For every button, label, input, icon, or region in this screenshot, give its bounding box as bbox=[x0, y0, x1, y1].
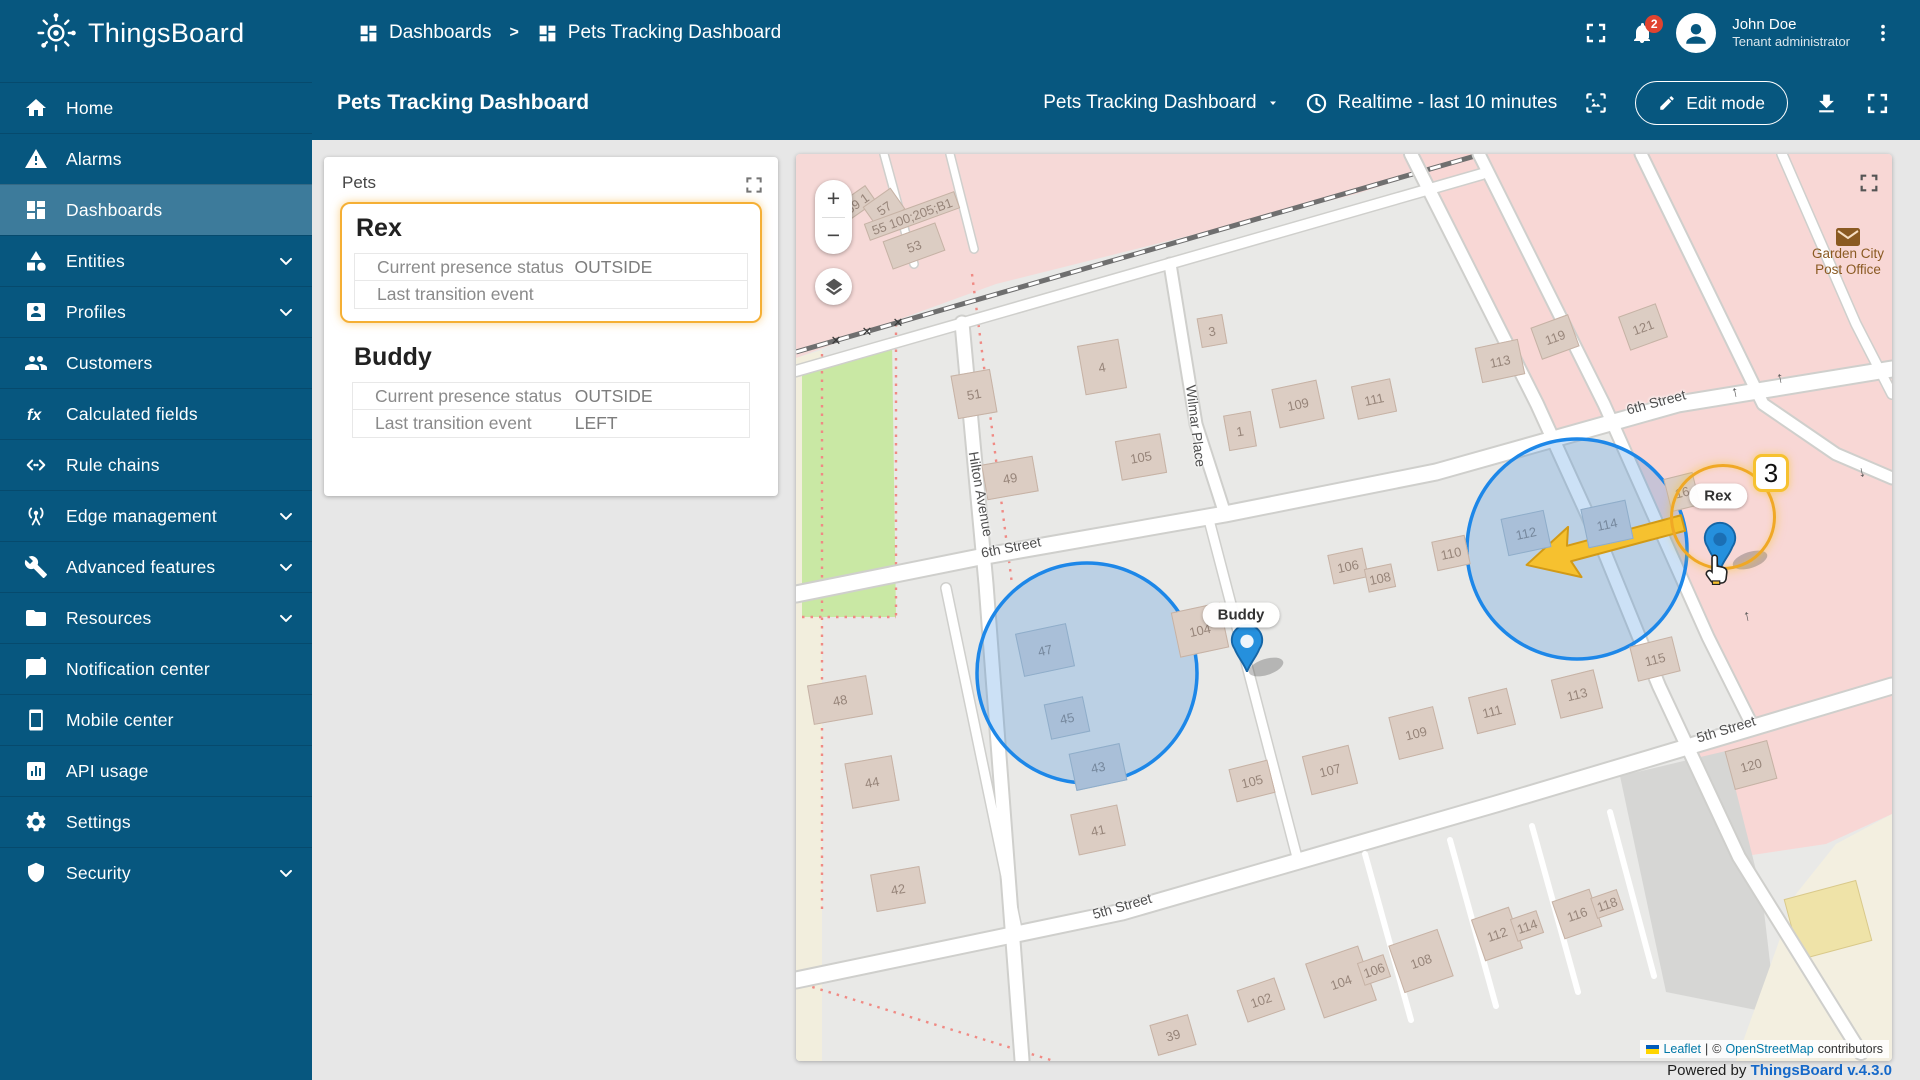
osm-link[interactable]: OpenStreetMap bbox=[1725, 1042, 1813, 1056]
ukraine-flag-icon bbox=[1646, 1045, 1659, 1054]
widget-title: Pets bbox=[342, 173, 376, 193]
rule-chains-icon bbox=[24, 453, 48, 477]
profiles-icon bbox=[24, 300, 48, 324]
widget-expand-icon[interactable] bbox=[744, 175, 764, 195]
dashboard-toolbar: Pets Tracking Dashboard Pets Tracking Da… bbox=[312, 66, 1920, 140]
timewindow-button[interactable]: Realtime - last 10 minutes bbox=[1305, 92, 1558, 115]
shield-icon bbox=[24, 861, 48, 885]
pencil-icon bbox=[1658, 94, 1676, 112]
home-icon bbox=[24, 96, 48, 120]
user-role: Tenant administrator bbox=[1732, 34, 1850, 50]
pet-name: Buddy bbox=[354, 343, 750, 372]
sidebar-item-mobile-center[interactable]: Mobile center bbox=[0, 694, 312, 745]
zoom-out-button[interactable]: − bbox=[815, 218, 852, 255]
sidebar-item-calculated-fields[interactable]: Calculated fields bbox=[0, 388, 312, 439]
leaflet-link[interactable]: Leaflet bbox=[1663, 1042, 1701, 1056]
mobile-icon bbox=[24, 708, 48, 732]
chevron-down-icon bbox=[276, 557, 296, 577]
dashboard-select[interactable]: Pets Tracking Dashboard bbox=[1043, 92, 1278, 114]
page-title: Pets Tracking Dashboard bbox=[337, 91, 589, 115]
dashboards-icon bbox=[24, 198, 48, 222]
entities-icon bbox=[24, 249, 48, 273]
edit-mode-button[interactable]: Edit mode bbox=[1635, 81, 1788, 125]
pet-attribute-row: Last transition event bbox=[355, 281, 747, 308]
pet-attribute-row: Current presence status OUTSIDE bbox=[353, 383, 749, 410]
map-layers-button[interactable] bbox=[815, 268, 852, 305]
clock-icon bbox=[1305, 92, 1328, 115]
sidebar-item-resources[interactable]: Resources bbox=[0, 592, 312, 643]
zoom-in-button[interactable]: + bbox=[815, 180, 852, 217]
top-header: ThingsBoard Dashboards > Pets Tracking D… bbox=[0, 0, 1920, 66]
chevron-down-icon bbox=[276, 863, 296, 883]
rail-crossing-icon: ✕ bbox=[862, 324, 873, 340]
poi-garden-city-post-office: Garden City Post Office bbox=[1800, 228, 1892, 279]
powered-by: Powered by ThingsBoard v.4.3.0 bbox=[1667, 1062, 1892, 1079]
map-zoom-control: + − bbox=[815, 180, 852, 254]
notification-icon bbox=[24, 657, 48, 681]
tools-icon bbox=[24, 555, 48, 579]
avatar[interactable] bbox=[1676, 13, 1716, 53]
fullscreen-icon[interactable] bbox=[1584, 21, 1608, 45]
user-info[interactable]: John Doe Tenant administrator bbox=[1732, 16, 1850, 51]
chevron-down-icon bbox=[276, 251, 296, 271]
sidebar-item-advanced-features[interactable]: Advanced features bbox=[0, 541, 312, 592]
sidebar-item-api-usage[interactable]: API usage bbox=[0, 745, 312, 796]
sidebar-item-customers[interactable]: Customers bbox=[0, 337, 312, 388]
screenshot-icon[interactable] bbox=[1583, 90, 1609, 116]
sidebar-item-security[interactable]: Security bbox=[0, 847, 312, 898]
map-pin-buddy[interactable] bbox=[1228, 622, 1266, 677]
caret-down-icon bbox=[1267, 97, 1279, 109]
marker-label-rex[interactable]: Rex bbox=[1689, 484, 1747, 509]
sidebar-item-profiles[interactable]: Profiles bbox=[0, 286, 312, 337]
pets-widget: Pets Rex Current presence status OUTSIDE… bbox=[324, 157, 778, 496]
event-value: LEFT bbox=[575, 413, 618, 434]
breadcrumb-dashboards[interactable]: Dashboards bbox=[358, 22, 491, 44]
map-canvas[interactable] bbox=[796, 154, 1892, 1061]
marker-count-badge: 3 bbox=[1753, 454, 1789, 492]
pet-attribute-row: Current presence status OUTSIDE bbox=[355, 254, 747, 281]
pet-card-buddy[interactable]: Buddy Current presence status OUTSIDE La… bbox=[340, 333, 762, 450]
sidebar-item-entities[interactable]: Entities bbox=[0, 235, 312, 286]
chevron-down-icon bbox=[276, 608, 296, 628]
more-menu-icon[interactable] bbox=[1872, 22, 1894, 44]
dashboard-icon bbox=[537, 23, 558, 44]
sidebar-item-dashboards[interactable]: Dashboards bbox=[0, 184, 312, 235]
toolbar-fullscreen-icon[interactable] bbox=[1865, 91, 1890, 116]
gear-icon bbox=[24, 810, 48, 834]
customers-icon bbox=[24, 351, 48, 375]
edge-icon bbox=[24, 504, 48, 528]
sidebar-item-edge-management[interactable]: Edge management bbox=[0, 490, 312, 541]
person-icon bbox=[1681, 18, 1711, 48]
map-widget[interactable]: 59 15755 100;205;B1535149410531109111113… bbox=[796, 154, 1892, 1061]
map-fullscreen-icon[interactable] bbox=[1858, 172, 1880, 194]
sidebar-item-alarms[interactable]: Alarms bbox=[0, 133, 312, 184]
marker-label-buddy[interactable]: Buddy bbox=[1203, 603, 1280, 628]
status-value: OUTSIDE bbox=[575, 386, 653, 407]
pet-attribute-row: Last transition event LEFT bbox=[353, 410, 749, 437]
rail-crossing-icon: ✕ bbox=[831, 333, 842, 349]
notifications-button[interactable]: 2 bbox=[1630, 21, 1654, 45]
pin-icon bbox=[1228, 622, 1266, 672]
sidebar-item-rule-chains[interactable]: Rule chains bbox=[0, 439, 312, 490]
chevron-down-icon bbox=[276, 506, 296, 526]
sidebar-item-settings[interactable]: Settings bbox=[0, 796, 312, 847]
app-brand: ThingsBoard bbox=[88, 18, 244, 49]
breadcrumb-separator: > bbox=[509, 24, 518, 42]
alarm-icon bbox=[24, 147, 48, 171]
user-name: John Doe bbox=[1732, 16, 1850, 35]
status-value: OUTSIDE bbox=[575, 257, 653, 278]
chevron-down-icon bbox=[276, 302, 296, 322]
fx-icon bbox=[24, 402, 48, 426]
layers-icon bbox=[824, 277, 844, 297]
app-logo[interactable]: ThingsBoard bbox=[0, 11, 312, 55]
mail-icon bbox=[1836, 228, 1860, 246]
download-icon[interactable] bbox=[1814, 91, 1839, 116]
map-attribution: Leaflet | © OpenStreetMap contributors bbox=[1640, 1040, 1889, 1058]
sidebar-item-home[interactable]: Home bbox=[0, 82, 312, 133]
version-link[interactable]: ThingsBoard v.4.3.0 bbox=[1751, 1062, 1892, 1079]
notification-count-badge: 2 bbox=[1645, 15, 1663, 33]
dashboards-icon bbox=[358, 23, 379, 44]
pet-name: Rex bbox=[356, 214, 748, 243]
breadcrumb: Dashboards > Pets Tracking Dashboard bbox=[358, 22, 781, 44]
thingsboard-logo-icon bbox=[34, 11, 78, 55]
pet-card-rex[interactable]: Rex Current presence status OUTSIDE Last… bbox=[340, 202, 762, 323]
rail-crossing-icon: ✕ bbox=[893, 315, 904, 331]
breadcrumb-current-dashboard[interactable]: Pets Tracking Dashboard bbox=[537, 22, 781, 44]
sidebar: Home Alarms Dashboards Entities Profiles… bbox=[0, 66, 312, 1080]
sidebar-item-notification-center[interactable]: Notification center bbox=[0, 643, 312, 694]
api-usage-icon bbox=[24, 759, 48, 783]
cursor-hand-icon bbox=[1704, 553, 1734, 585]
folder-icon bbox=[24, 606, 48, 630]
